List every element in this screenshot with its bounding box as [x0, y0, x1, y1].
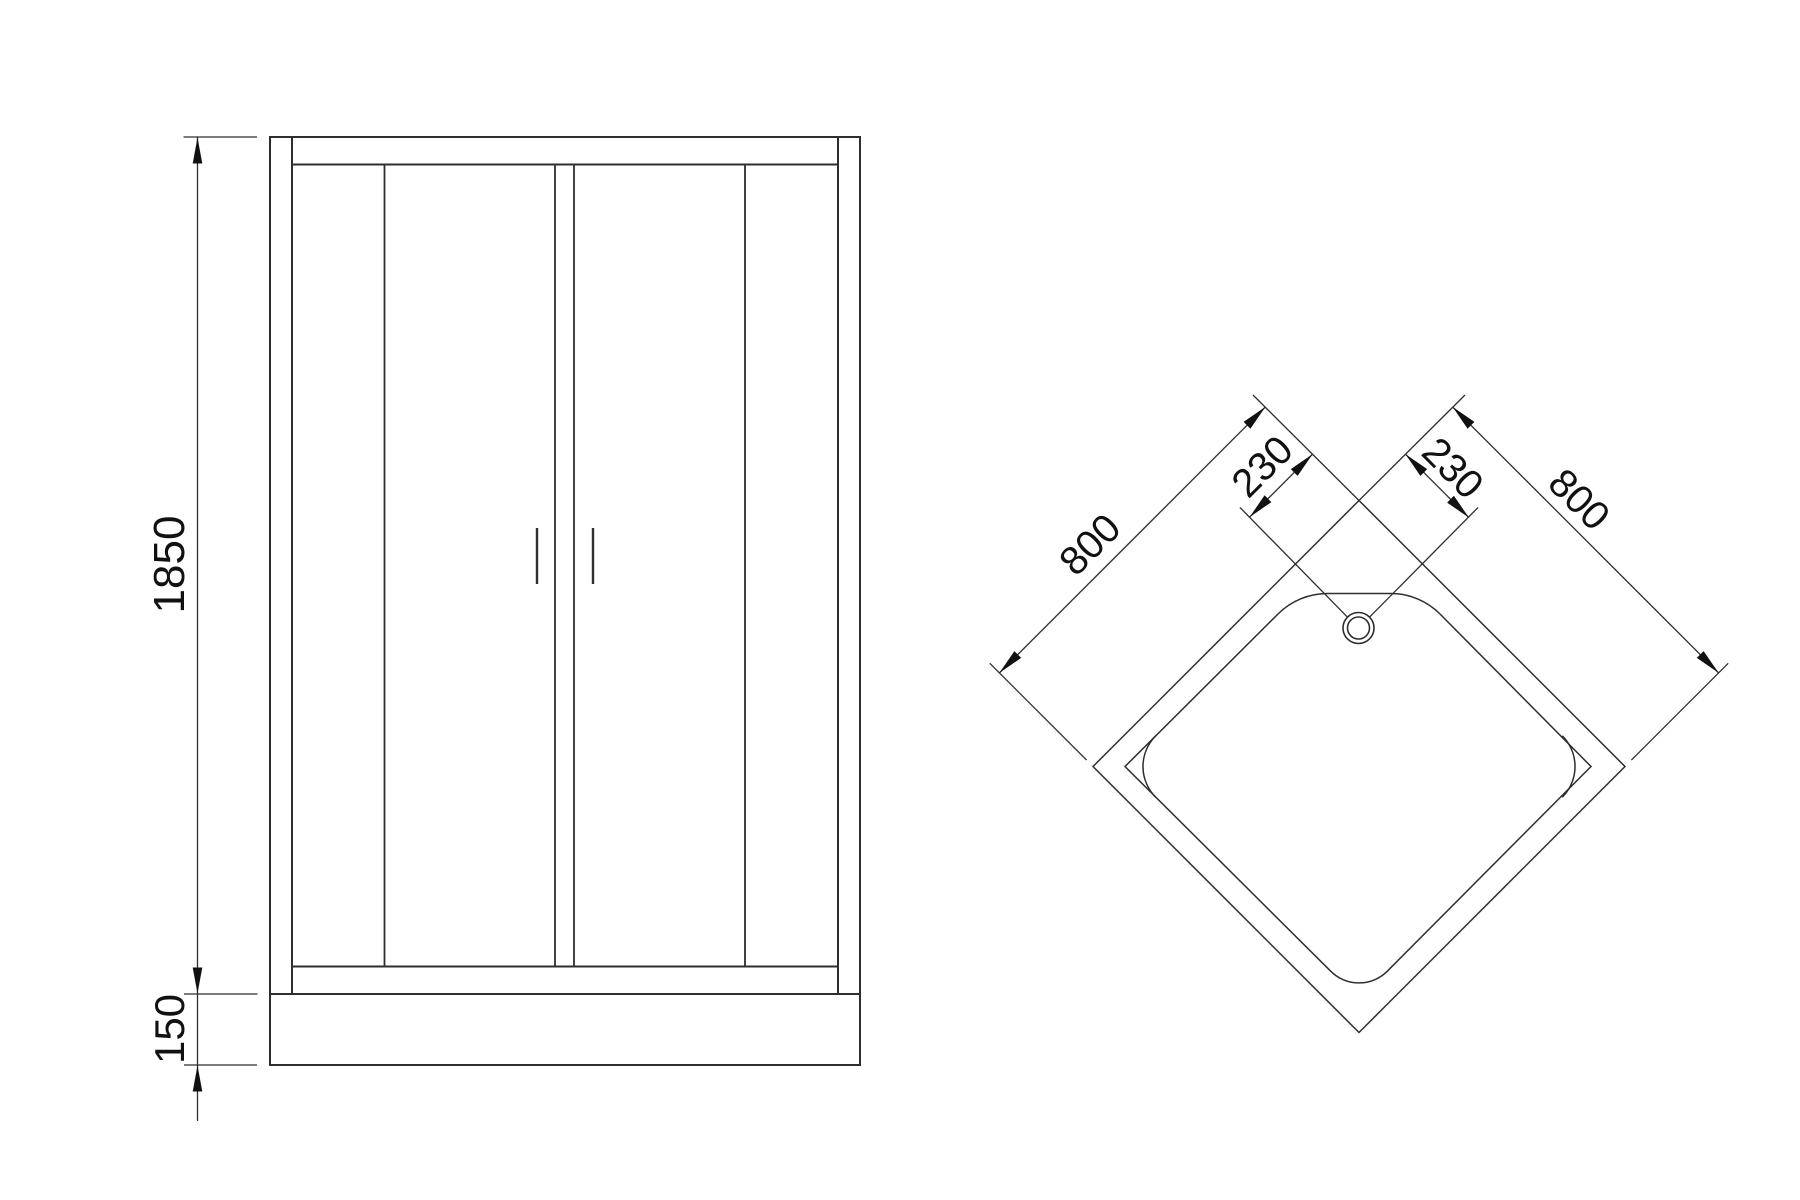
- svg-text:800: 800: [1540, 461, 1618, 539]
- svg-text:150: 150: [146, 994, 193, 1064]
- svg-text:1850: 1850: [145, 516, 194, 614]
- svg-text:230: 230: [1413, 429, 1491, 507]
- svg-text:800: 800: [1051, 506, 1129, 584]
- svg-text:230: 230: [1223, 428, 1301, 506]
